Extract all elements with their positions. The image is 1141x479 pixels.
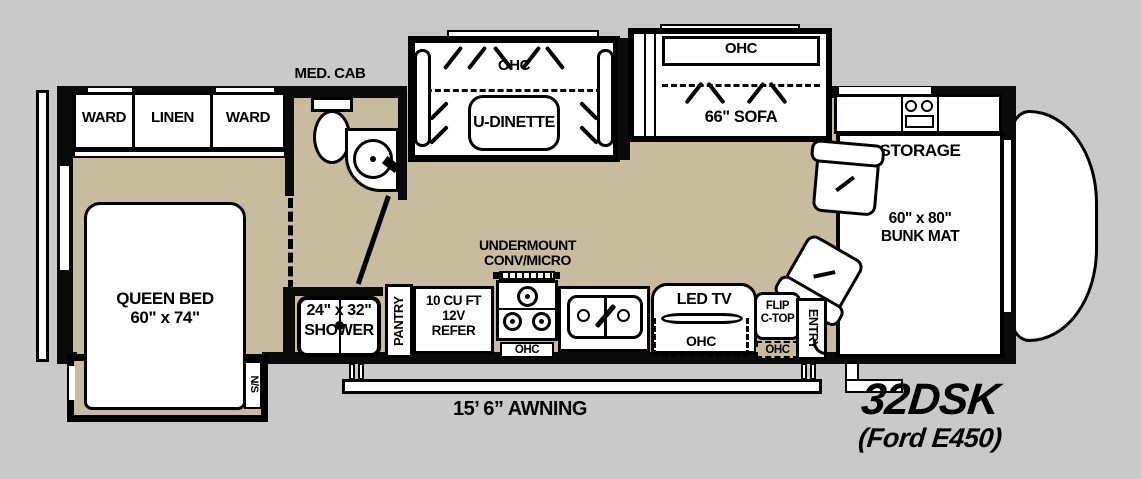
sink-drain-icon (617, 309, 630, 322)
hatch-mark (579, 125, 599, 145)
refer-label-line3: REFER (413, 324, 494, 339)
windshield-window (1004, 140, 1011, 312)
wardrobe-left-label: WARD (73, 110, 135, 127)
slide-travel-line (417, 89, 611, 92)
stove-burner-dot (510, 319, 515, 324)
rear-bumper (36, 90, 49, 362)
tv-label: LED TV (651, 291, 757, 309)
hatch-mark (429, 125, 449, 145)
bunk-label-line2: BUNK MAT (840, 228, 1000, 245)
stove-ohc-label: OHC (500, 344, 554, 357)
awning-arm-right (801, 363, 807, 380)
wardrobe-base-strip (73, 150, 286, 158)
queen-bed-label-line2: 60" x 74" (84, 309, 246, 328)
bathroom-wall-left (285, 92, 294, 196)
flip-label-line2: C-TOP (754, 313, 801, 326)
sofa-label: 66" SOFA (662, 108, 820, 126)
awning-bar (342, 379, 822, 394)
bathroom-sink-drain (370, 156, 376, 162)
counter-divider (937, 97, 939, 131)
dinette-slideout: OHC U-DINETTE (408, 36, 620, 162)
stove-grate-line (499, 308, 555, 310)
driver-seat (812, 153, 881, 216)
bed-slideout-window (69, 366, 75, 400)
shower-size-label: 24" x 32" (297, 302, 381, 320)
cooktop-burner-icon (905, 100, 917, 112)
left-window (60, 166, 69, 270)
slide-travel-line (662, 84, 820, 87)
shower-label: SHOWER (297, 322, 381, 340)
med-cab-label: MED. CAB (280, 66, 380, 83)
front-counter (834, 94, 1002, 134)
stove-vent-strip (499, 271, 555, 280)
flip-label-line1: FLIP (754, 300, 801, 313)
floorplan-canvas: WARD LINEN WARD MED. CAB QUEEN BED 60" x… (0, 0, 1141, 479)
hatch-mark (579, 101, 599, 121)
refer-label-line2: 12V (413, 309, 494, 324)
sofa-armrest-line (654, 34, 656, 136)
linen-label: LINEN (132, 110, 213, 127)
cooktop-burner-icon (921, 100, 933, 112)
kitchen-counter (558, 286, 650, 352)
stove-knob (493, 272, 500, 279)
undermount-label-line2: CONV/MICRO (455, 253, 600, 268)
queen-bed-label-line1: QUEEN BED (84, 290, 246, 309)
model-name: 32DSK (825, 376, 1034, 424)
flip-ohc-label: OHC (756, 344, 799, 357)
stove-burner-dot (525, 294, 530, 299)
dinette-bench-left (414, 49, 431, 147)
counter-divider (901, 97, 903, 131)
nightstand-label: N/S (248, 370, 260, 398)
refer-label-line1: 10 CU FT (413, 294, 494, 309)
stove-burner-dot (539, 319, 544, 324)
dinette-bench-right (597, 49, 614, 147)
awning-label: 15’ 6” AWNING (370, 398, 670, 420)
model-chassis: (Ford E450) (826, 424, 1033, 454)
bathroom-wall-right (398, 92, 407, 200)
sofa-slideout: OHC 66" SOFA (628, 28, 832, 142)
awning-arm-left (358, 363, 364, 380)
dinette-label: U-DINETTE (468, 114, 560, 132)
sink-drain-icon (577, 309, 590, 322)
stove-icon (496, 280, 558, 341)
awning-arm-right (810, 363, 816, 380)
hatch-mark (429, 101, 449, 121)
pantry-label: PANTRY (392, 285, 406, 357)
cooktop-oven-icon (905, 115, 934, 128)
bathroom-pocket-door (288, 198, 293, 290)
wardrobe-right-label: WARD (210, 110, 286, 127)
front-cap (1010, 110, 1098, 342)
shower-wall-left (283, 287, 295, 360)
awning-arm-left (349, 363, 355, 380)
shower-wall-top (283, 287, 383, 296)
sofa-armrest-line (644, 34, 646, 136)
stove-knob (553, 272, 560, 279)
entry-label: ENTRY (805, 293, 819, 365)
sofa-ohc-label: OHC (662, 41, 820, 58)
tv-ohc-label: OHC (653, 334, 749, 349)
